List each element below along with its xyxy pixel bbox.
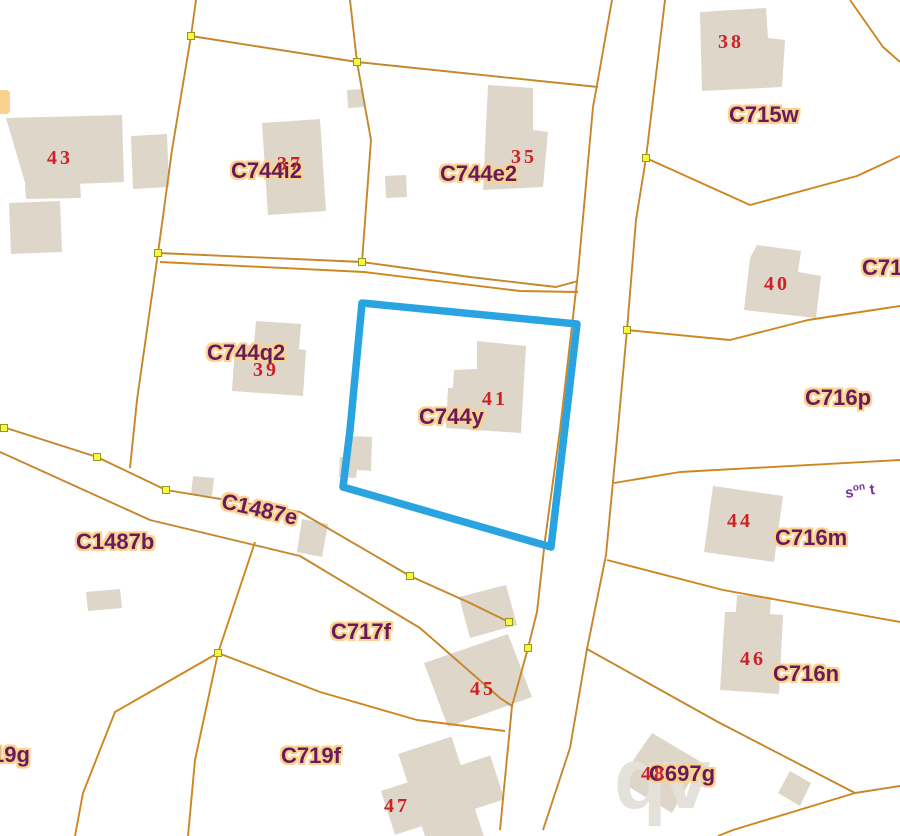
boundary-vertex [407,573,414,580]
house-number-39: 39 [253,359,279,382]
parcel-label-c715w[interactable]: C715w [729,102,799,128]
house-number-48: 48 [641,763,667,786]
boundary-vertex [94,454,101,461]
house-number-45: 45 [470,678,496,701]
boundary-vertex [188,33,195,40]
parcel-label-c1487b[interactable]: C1487b [76,529,154,555]
parcel-label-c744y[interactable]: C744y [419,404,484,430]
boundary-vertex [624,327,631,334]
house-number-47: 47 [384,795,410,818]
building-road-small [191,476,214,496]
boundary-vertex [506,619,513,626]
house-number-40: 40 [764,273,790,296]
house-number-35: 35 [511,146,537,169]
building-small-c744e2 [385,175,407,198]
house-number-46: 46 [740,648,766,671]
boundary-vertex [155,250,162,257]
house-number-38: 38 [718,31,744,54]
house-number-43: 43 [47,147,73,170]
parcel-label-c716p[interactable]: C716p [805,385,871,411]
parcel-label-c717f[interactable]: C717f [331,619,391,645]
house-number-37: 37 [277,153,303,176]
boundary-vertex [1,425,8,432]
parcel-label-c71-cut[interactable]: C71 [862,255,900,281]
parcel-label-cut-fragment [0,90,10,114]
parcel-label-c719g-cut[interactable]: 19g [0,742,30,768]
building-43 [6,115,169,254]
cadastral-map[interactable]: qv C744i2 C744e2 C715w C71 C744q2 [0,0,900,836]
boundary-vertex [643,155,650,162]
parcel-label-c744e2[interactable]: C744e2 [440,161,517,187]
boundary-vertex [215,650,222,657]
boundary-vertex [354,59,361,66]
parcel-label-c719f[interactable]: C719f [281,743,341,769]
building-47 [372,727,515,836]
parcel-label-c716n[interactable]: C716n [773,661,839,687]
house-number-44: 44 [727,510,753,533]
building-c1487b-b [86,589,122,611]
house-number-41: 41 [482,388,508,411]
boundary-vertex [163,487,170,494]
boundary-vertex [359,259,366,266]
building-48-annex [778,771,811,806]
street-name-superscript: on [852,481,866,494]
parcel-label-c716m[interactable]: C716m [775,525,847,551]
boundary-vertex [525,645,532,652]
